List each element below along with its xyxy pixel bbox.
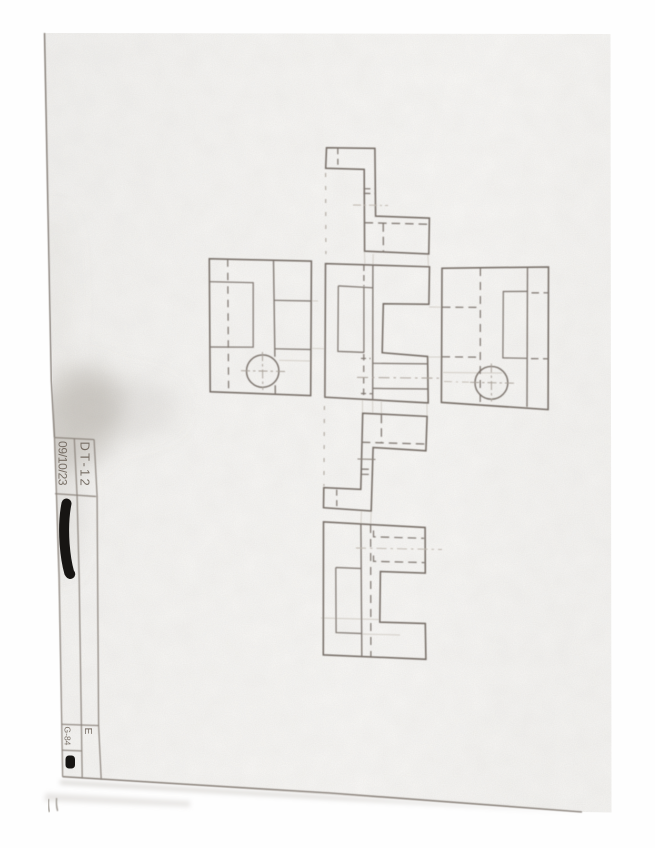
svg-text:E: E bbox=[82, 728, 94, 735]
svg-text:DT-12: DT-12 bbox=[78, 442, 93, 488]
svg-text:09/10/23: 09/10/23 bbox=[56, 441, 70, 486]
svg-text:G-84: G-84 bbox=[63, 727, 73, 746]
